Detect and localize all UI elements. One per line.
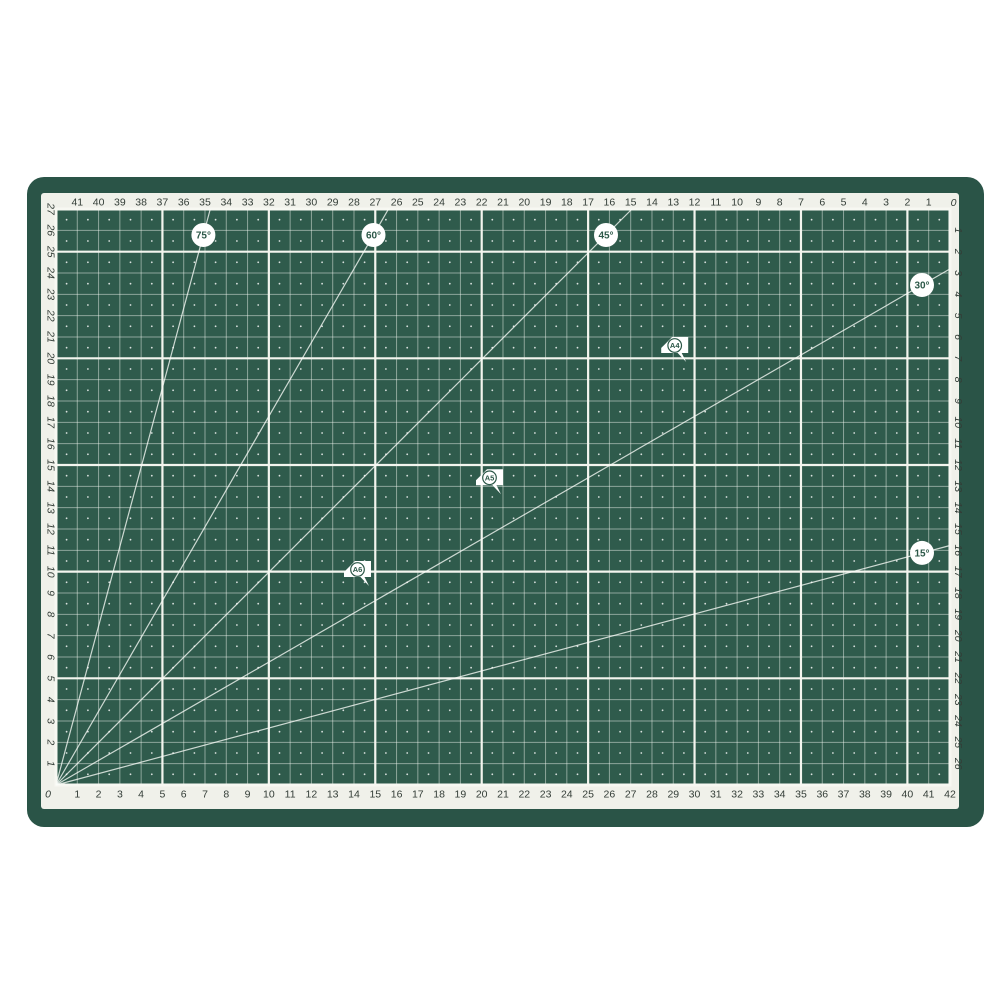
svg-text:12: 12: [45, 523, 57, 535]
svg-text:32: 32: [731, 789, 743, 801]
svg-text:4: 4: [952, 291, 964, 297]
svg-text:60°: 60°: [366, 231, 381, 242]
svg-text:21: 21: [952, 650, 964, 663]
svg-text:20: 20: [952, 629, 964, 642]
svg-text:17: 17: [952, 566, 964, 579]
svg-text:42: 42: [944, 789, 956, 801]
svg-text:11: 11: [45, 545, 57, 556]
svg-text:26: 26: [391, 197, 403, 209]
svg-text:10: 10: [952, 416, 964, 428]
svg-text:22: 22: [476, 197, 488, 209]
svg-text:19: 19: [45, 374, 57, 386]
svg-text:20: 20: [518, 197, 530, 209]
svg-text:19: 19: [455, 789, 467, 801]
svg-text:15: 15: [369, 789, 381, 801]
svg-text:13: 13: [327, 789, 339, 801]
svg-text:4: 4: [138, 789, 144, 801]
svg-text:25: 25: [952, 735, 964, 748]
svg-text:4: 4: [45, 697, 57, 703]
svg-text:19: 19: [952, 608, 964, 620]
svg-text:24: 24: [561, 789, 573, 801]
svg-text:37: 37: [157, 197, 169, 209]
angle-label-45: 45°: [594, 223, 618, 247]
svg-text:23: 23: [540, 789, 552, 801]
svg-text:33: 33: [242, 197, 254, 209]
svg-text:27: 27: [45, 202, 57, 216]
svg-text:15: 15: [952, 523, 964, 535]
svg-text:35: 35: [199, 197, 211, 209]
svg-text:15°: 15°: [914, 549, 929, 560]
svg-text:17: 17: [45, 416, 57, 429]
svg-text:36: 36: [816, 789, 828, 801]
svg-text:8: 8: [223, 789, 229, 801]
cutting-mat-photo: 75°60°45°30°15°A4A5A64140393837363534333…: [0, 0, 1000, 1000]
svg-text:22: 22: [952, 671, 964, 684]
svg-text:12: 12: [689, 197, 701, 209]
ruler-corner-zero-bottom: 0: [45, 789, 51, 801]
svg-text:21: 21: [497, 197, 509, 209]
svg-text:17: 17: [582, 197, 594, 209]
svg-text:33: 33: [753, 789, 765, 801]
svg-text:6: 6: [952, 334, 964, 340]
svg-text:39: 39: [880, 789, 892, 801]
svg-text:41: 41: [71, 197, 83, 209]
svg-text:22: 22: [518, 789, 530, 801]
svg-text:11: 11: [285, 789, 296, 801]
svg-text:1: 1: [952, 227, 964, 233]
svg-text:13: 13: [667, 197, 679, 209]
svg-text:20: 20: [45, 351, 57, 364]
svg-text:3: 3: [883, 197, 889, 209]
svg-text:18: 18: [433, 789, 445, 801]
svg-text:2: 2: [952, 248, 964, 255]
svg-text:29: 29: [667, 789, 679, 801]
svg-text:23: 23: [45, 287, 57, 300]
svg-text:8: 8: [45, 611, 57, 617]
svg-text:5: 5: [45, 675, 57, 681]
angle-label-15: 15°: [910, 541, 934, 565]
svg-text:21: 21: [497, 789, 509, 801]
svg-text:34: 34: [774, 789, 786, 801]
svg-text:10: 10: [45, 566, 57, 578]
svg-text:31: 31: [284, 197, 296, 209]
svg-text:30: 30: [306, 197, 318, 209]
svg-text:25: 25: [412, 197, 424, 209]
svg-text:40: 40: [902, 789, 914, 801]
svg-text:3: 3: [952, 270, 964, 276]
svg-text:14: 14: [646, 197, 658, 209]
svg-text:A5: A5: [485, 474, 495, 483]
svg-text:6: 6: [181, 789, 187, 801]
angle-label-60: 60°: [362, 223, 386, 247]
svg-text:20: 20: [476, 789, 488, 801]
ruler-corner-zero-top: 0: [951, 197, 957, 209]
svg-text:10: 10: [731, 197, 743, 209]
svg-text:16: 16: [45, 438, 57, 450]
svg-text:38: 38: [135, 197, 147, 209]
svg-text:8: 8: [777, 197, 783, 209]
svg-text:37: 37: [838, 789, 850, 801]
svg-text:40: 40: [93, 197, 105, 209]
svg-text:23: 23: [455, 197, 467, 209]
ruler-bottom: 1234567891011121314151617181920212223242…: [45, 789, 956, 801]
svg-text:28: 28: [348, 197, 360, 209]
svg-text:27: 27: [625, 789, 637, 801]
svg-text:38: 38: [859, 789, 871, 801]
svg-text:24: 24: [45, 266, 57, 279]
svg-text:9: 9: [245, 789, 251, 801]
svg-text:13: 13: [952, 480, 964, 492]
svg-text:27: 27: [369, 197, 381, 209]
svg-text:A4: A4: [670, 341, 680, 350]
svg-text:32: 32: [263, 197, 275, 209]
svg-text:7: 7: [202, 789, 208, 801]
svg-text:11: 11: [710, 197, 721, 209]
svg-text:22: 22: [45, 309, 57, 322]
svg-text:75°: 75°: [196, 231, 211, 242]
svg-text:14: 14: [348, 789, 360, 801]
svg-text:18: 18: [561, 197, 573, 209]
svg-text:1: 1: [45, 761, 57, 767]
svg-text:3: 3: [45, 718, 57, 724]
cutting-mat: 75°60°45°30°15°A4A5A64140393837363534333…: [0, 0, 1000, 1000]
svg-text:16: 16: [604, 197, 616, 209]
svg-text:21: 21: [45, 330, 57, 343]
svg-text:2: 2: [45, 738, 57, 745]
svg-text:1: 1: [926, 197, 932, 209]
svg-text:26: 26: [952, 757, 964, 770]
svg-text:26: 26: [45, 223, 57, 236]
svg-text:5: 5: [841, 197, 847, 209]
svg-text:A6: A6: [353, 565, 363, 574]
svg-text:1: 1: [74, 789, 80, 801]
svg-text:30: 30: [689, 789, 701, 801]
angle-label-75: 75°: [191, 223, 215, 247]
svg-text:6: 6: [45, 654, 57, 660]
svg-text:14: 14: [952, 502, 964, 514]
svg-text:18: 18: [952, 587, 964, 599]
svg-text:41: 41: [923, 789, 935, 801]
svg-text:30°: 30°: [914, 281, 929, 292]
svg-text:3: 3: [117, 789, 123, 801]
svg-text:13: 13: [45, 502, 57, 514]
svg-text:34: 34: [220, 197, 232, 209]
svg-text:12: 12: [952, 459, 964, 471]
svg-text:28: 28: [646, 789, 658, 801]
svg-text:16: 16: [952, 544, 964, 556]
svg-text:9: 9: [45, 590, 57, 596]
svg-text:15: 15: [45, 459, 57, 471]
svg-text:5: 5: [952, 313, 964, 319]
svg-text:7: 7: [798, 197, 804, 209]
svg-text:17: 17: [412, 789, 424, 801]
svg-text:9: 9: [755, 197, 761, 209]
svg-text:4: 4: [862, 197, 868, 209]
svg-text:15: 15: [625, 197, 637, 209]
svg-text:36: 36: [178, 197, 190, 209]
svg-text:14: 14: [45, 480, 57, 492]
svg-text:35: 35: [795, 789, 807, 801]
svg-text:25: 25: [45, 245, 57, 258]
svg-text:6: 6: [819, 197, 825, 209]
svg-text:39: 39: [114, 197, 126, 209]
svg-text:24: 24: [952, 714, 964, 727]
angle-label-30: 30°: [910, 273, 934, 297]
svg-text:19: 19: [540, 197, 552, 209]
svg-text:24: 24: [433, 197, 445, 209]
svg-text:12: 12: [306, 789, 318, 801]
svg-text:9: 9: [952, 398, 964, 404]
svg-text:25: 25: [582, 789, 594, 801]
svg-text:11: 11: [952, 438, 964, 449]
svg-text:29: 29: [327, 197, 339, 209]
svg-text:2: 2: [96, 789, 102, 801]
svg-text:26: 26: [604, 789, 616, 801]
svg-text:8: 8: [952, 377, 964, 383]
svg-text:10: 10: [263, 789, 275, 801]
svg-text:2: 2: [904, 197, 910, 209]
svg-text:18: 18: [45, 395, 57, 407]
svg-text:16: 16: [391, 789, 403, 801]
svg-text:31: 31: [710, 789, 722, 801]
svg-text:5: 5: [159, 789, 165, 801]
svg-text:45°: 45°: [598, 231, 613, 242]
svg-text:23: 23: [952, 693, 964, 706]
